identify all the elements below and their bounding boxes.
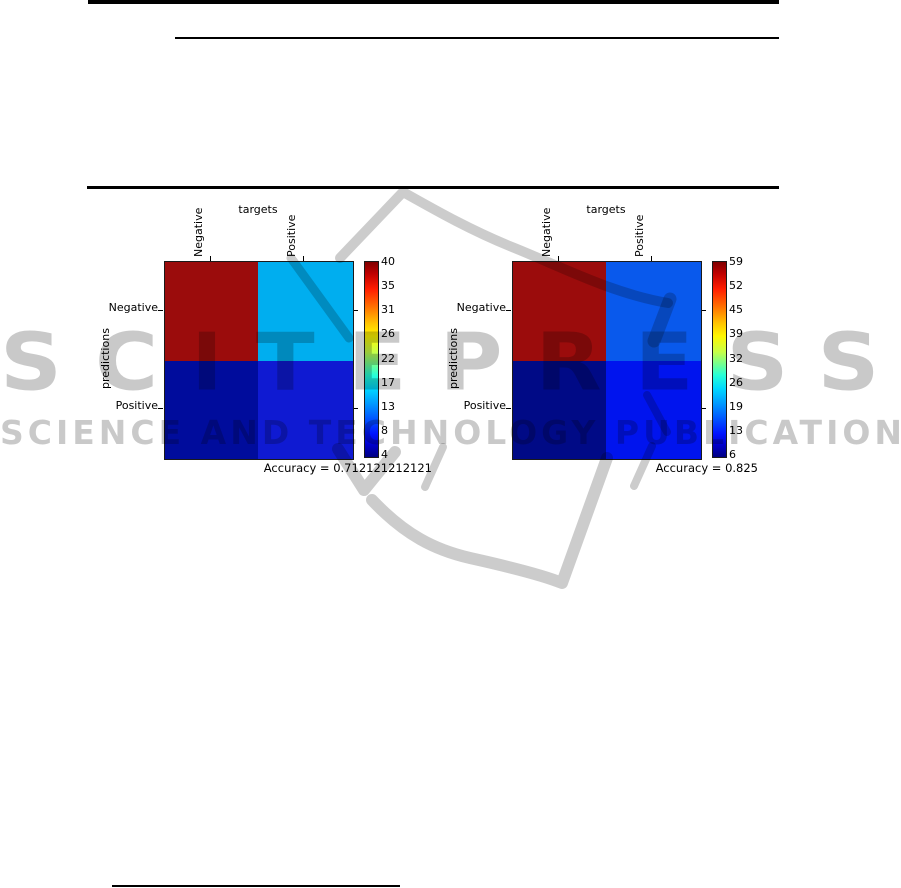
colorbar-tick: 35 [381, 280, 395, 292]
footnote-rule [112, 885, 400, 887]
y-axis-title: predictions [448, 328, 459, 389]
colorbar-tick: 32 [729, 353, 743, 365]
colorbar-tick: 31 [381, 304, 395, 316]
accuracy-caption: Accuracy = 0.712121212121 [156, 461, 432, 475]
cell-positive-negative [258, 262, 353, 361]
section-divider-rule [87, 186, 779, 189]
column-label-negative: Negative [541, 208, 552, 257]
cell-negative-positive [513, 361, 606, 459]
colorbar-tick: 22 [381, 353, 395, 365]
confusion-matrix-figure-right: targets Negative Positive predictions Ne… [444, 195, 789, 487]
colorbar-tick: 13 [729, 425, 743, 437]
colorbar-tick: 17 [381, 377, 395, 389]
cell-positive-positive [258, 361, 353, 459]
row-label-positive: Positive [446, 399, 506, 412]
cell-negative-negative [165, 262, 258, 361]
row-label-negative: Negative [98, 301, 158, 314]
colorbar-tick: 19 [729, 401, 743, 413]
row-label-positive: Positive [98, 399, 158, 412]
colorbar-tick: 8 [381, 425, 388, 437]
colorbar-tick: 40 [381, 256, 395, 268]
paper-page: targets Negative Positive predictions Ne… [0, 0, 901, 888]
colorbar-tick: 13 [381, 401, 395, 413]
confusion-matrix-figure-left: targets Negative Positive predictions Ne… [96, 195, 441, 487]
colorbar-tick: 59 [729, 256, 743, 268]
colorbar-tick: 6 [729, 449, 736, 461]
colorbar-tick: 45 [729, 304, 743, 316]
cell-negative-negative [513, 262, 606, 361]
colorbar-tick: 26 [729, 377, 743, 389]
accuracy-caption: Accuracy = 0.825 [504, 461, 758, 475]
colorbar-tick: 4 [381, 449, 388, 461]
colorbar-tick: 26 [381, 328, 395, 340]
cell-positive-negative [606, 262, 701, 361]
heatmap-grid [512, 261, 702, 460]
header-rule [175, 37, 779, 39]
axis-tick [506, 408, 511, 409]
y-axis-title: predictions [100, 328, 111, 389]
column-label-negative: Negative [193, 208, 204, 257]
cell-negative-positive [165, 361, 258, 459]
axis-tick [506, 310, 511, 311]
column-label-positive: Positive [634, 215, 645, 257]
column-label-positive: Positive [286, 215, 297, 257]
colorbar-gradient [712, 261, 727, 458]
axis-tick [158, 408, 163, 409]
colorbar-tick: 39 [729, 328, 743, 340]
row-label-negative: Negative [446, 301, 506, 314]
axis-tick [158, 310, 163, 311]
colorbar-gradient [364, 261, 379, 458]
cell-positive-positive [606, 361, 701, 459]
heatmap-grid [164, 261, 354, 460]
top-thick-rule [88, 0, 779, 4]
colorbar-tick: 52 [729, 280, 743, 292]
